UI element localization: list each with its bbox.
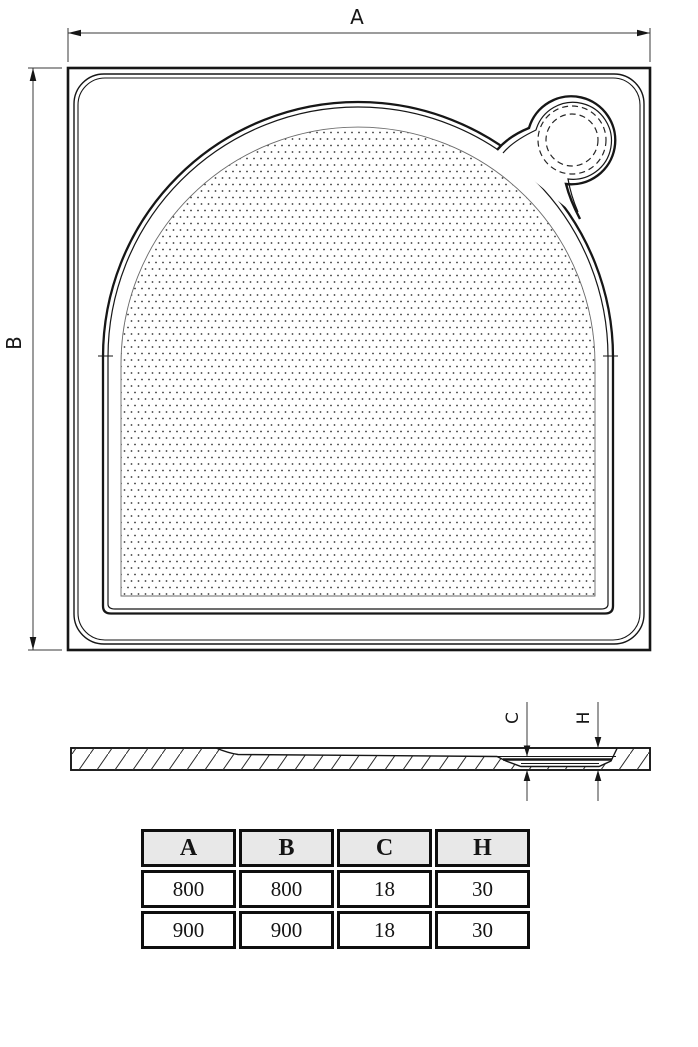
dimension-a-label: A bbox=[350, 5, 364, 29]
dimension-h-label: H bbox=[574, 712, 594, 725]
arrowhead-left-icon bbox=[68, 30, 81, 37]
shower-tray-technical-drawing: A B bbox=[0, 0, 698, 1047]
arrowhead-down-icon bbox=[30, 637, 37, 650]
dimension-a: A bbox=[68, 5, 650, 62]
table-cell: 900 bbox=[239, 911, 334, 949]
table-header-b: B bbox=[239, 829, 334, 867]
table-row: 800 800 18 30 bbox=[141, 870, 530, 908]
arrowhead-up-icon bbox=[30, 68, 37, 81]
dimension-b-label: B bbox=[2, 336, 26, 350]
table-cell: 18 bbox=[337, 911, 432, 949]
plan-view: A B bbox=[2, 5, 650, 650]
table-cell: 900 bbox=[141, 911, 236, 949]
table-header-a: A bbox=[141, 829, 236, 867]
table-cell: 30 bbox=[435, 870, 530, 908]
table-cell: 18 bbox=[337, 870, 432, 908]
table-cell: 800 bbox=[141, 870, 236, 908]
dimension-b: B bbox=[2, 68, 62, 650]
table-cell: 800 bbox=[239, 870, 334, 908]
dimension-c-label: C bbox=[503, 712, 523, 724]
section-view: C H bbox=[71, 702, 650, 801]
arrowhead-up-icon bbox=[595, 770, 602, 781]
arrowhead-up-icon bbox=[524, 770, 531, 781]
technical-drawing: A B bbox=[0, 0, 698, 815]
table-row: 900 900 18 30 bbox=[141, 911, 530, 949]
arrowhead-right-icon bbox=[637, 30, 650, 37]
table-header-h: H bbox=[435, 829, 530, 867]
anti-slip-floor bbox=[121, 127, 595, 596]
table-header-c: C bbox=[337, 829, 432, 867]
dimensions-table: A B C H 800 800 18 30 900 900 18 30 bbox=[138, 826, 533, 952]
table-cell: 30 bbox=[435, 911, 530, 949]
arrowhead-down-icon bbox=[595, 737, 602, 748]
table-header-row: A B C H bbox=[141, 829, 530, 867]
